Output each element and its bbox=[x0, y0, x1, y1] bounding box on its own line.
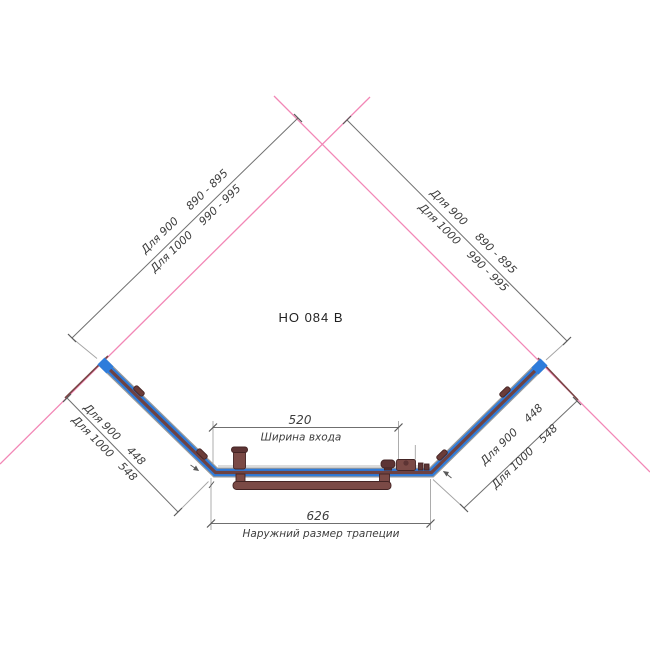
extension-side-right bbox=[433, 480, 464, 509]
dim-text-side-right-1000: Для 1000548 bbox=[488, 422, 560, 492]
extension-side-left bbox=[178, 482, 209, 513]
wall-line-right bbox=[274, 96, 650, 472]
door-knob-body bbox=[234, 451, 246, 469]
entrance-width-value: 520 bbox=[289, 413, 312, 427]
shower-enclosure-drawing: HO 084 B Для 900890 - 895 Для 1000990 - … bbox=[0, 0, 650, 650]
dim-value: 448 bbox=[521, 401, 545, 425]
outer-size-label: Наружний размер трапеции bbox=[243, 528, 400, 540]
glass-panel-blue bbox=[102, 362, 543, 473]
guide-block bbox=[425, 464, 430, 470]
entrance-width-label: Ширина входа bbox=[261, 432, 342, 444]
corner-tick-left bbox=[209, 482, 214, 489]
guide-block bbox=[419, 463, 424, 470]
glass-end-cap-right bbox=[535, 362, 544, 371]
outer-size-value: 626 bbox=[307, 509, 330, 523]
corner-arrowhead-left bbox=[193, 466, 199, 472]
glass-panel-outline bbox=[102, 362, 543, 473]
wall-line-left bbox=[0, 97, 370, 464]
glass-panel-frame-core bbox=[102, 362, 543, 473]
model-code: HO 084 B bbox=[278, 310, 343, 325]
door-stopper-cap bbox=[381, 460, 395, 468]
dimline-top-left bbox=[72, 118, 298, 338]
dim-value: 548 bbox=[536, 422, 560, 446]
roller-screw bbox=[403, 460, 408, 465]
door-knob-cap bbox=[232, 447, 248, 453]
drawing-canvas: HO 084 B Для 900890 - 895 Для 1000990 - … bbox=[0, 0, 650, 650]
glass-end-cap-left bbox=[101, 361, 110, 370]
dimline-top-right bbox=[347, 120, 567, 341]
towel-bar-handle bbox=[233, 482, 391, 490]
